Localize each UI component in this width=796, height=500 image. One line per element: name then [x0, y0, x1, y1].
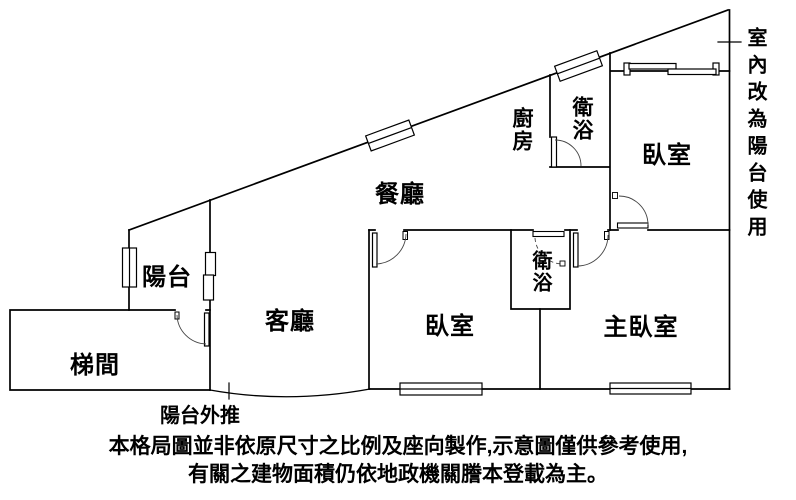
window-bedroom-lower	[400, 383, 482, 395]
door-bedroom-upper	[613, 193, 649, 229]
disclaimer-line2: 有關之建物面積仍依地政機關謄本登載為主。	[0, 458, 796, 488]
door-stairwell	[175, 312, 209, 346]
door-bedroom-lower	[373, 232, 408, 268]
window-diagonal-2	[555, 51, 603, 82]
wall-pushout-arc	[210, 389, 370, 397]
room-label-master-bedroom: 主臥室	[604, 307, 679, 342]
room-label-kitchen: 廚房	[506, 107, 536, 153]
floor-plan-drawing	[0, 0, 796, 500]
wall-diagonal	[129, 10, 728, 230]
room-label-bathroom-lower: 衛浴	[526, 250, 555, 294]
window-master-bedroom	[610, 383, 691, 394]
doors	[175, 137, 648, 346]
window-diagonal-1	[366, 120, 415, 151]
window-bedroom-upper	[624, 63, 719, 75]
room-label-bedroom-lower: 臥室	[425, 306, 475, 341]
sliding-door-balcony	[204, 253, 216, 301]
room-label-stairwell: 梯間	[70, 345, 120, 380]
room-label-bedroom-upper: 臥室	[642, 135, 692, 170]
door-master-bedroom	[574, 232, 610, 268]
room-label-dining-room: 餐廳	[375, 174, 425, 209]
disclaimer-line1: 本格局圖並非依原尺寸之比例及座向製作,示意圖僅供參考使用,	[0, 430, 796, 460]
room-label-bathroom-upper: 衛浴	[566, 96, 596, 142]
window-balcony	[123, 248, 137, 287]
room-label-living-room: 客廳	[265, 301, 315, 336]
annotation-balcony-pushout: 陽台外推	[160, 399, 240, 428]
annotation-interior-to-balcony: 室內改為陽台使用	[741, 27, 770, 243]
floor-plan-page: 陽台 梯間 客廳 餐廳 廚房 衛浴 臥室 衛浴 臥室 主臥室 室內改為陽台使用 …	[0, 0, 796, 500]
room-label-balcony: 陽台	[142, 257, 192, 292]
